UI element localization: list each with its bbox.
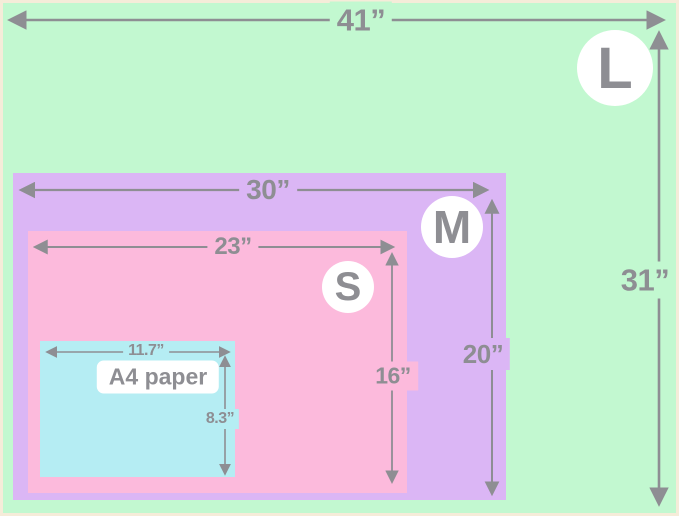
- a4-paper-badge: A4 paper: [97, 361, 219, 394]
- size-badge-M: M: [421, 196, 483, 258]
- width-label-S: 23”: [207, 232, 258, 262]
- size-badge-L: L: [577, 30, 653, 106]
- height-label-A4: 8.3”: [201, 409, 239, 429]
- height-label-L: 31”: [614, 262, 676, 299]
- width-label-L: 41”: [330, 2, 392, 39]
- size-badge-L-letter: L: [597, 35, 632, 102]
- size-badge-S-letter: S: [335, 265, 362, 310]
- size-badge-S: S: [322, 261, 374, 313]
- height-label-S: 16”: [368, 362, 418, 391]
- width-label-M: 30”: [239, 173, 297, 207]
- width-label-A4: 11.7”: [123, 341, 169, 361]
- size-comparison-diagram: 41” 31” 30” 20” 23” 16” 11.7” 8.3” L M S…: [0, 0, 679, 516]
- size-badge-M-letter: M: [433, 200, 471, 254]
- height-label-M: 20”: [456, 338, 510, 370]
